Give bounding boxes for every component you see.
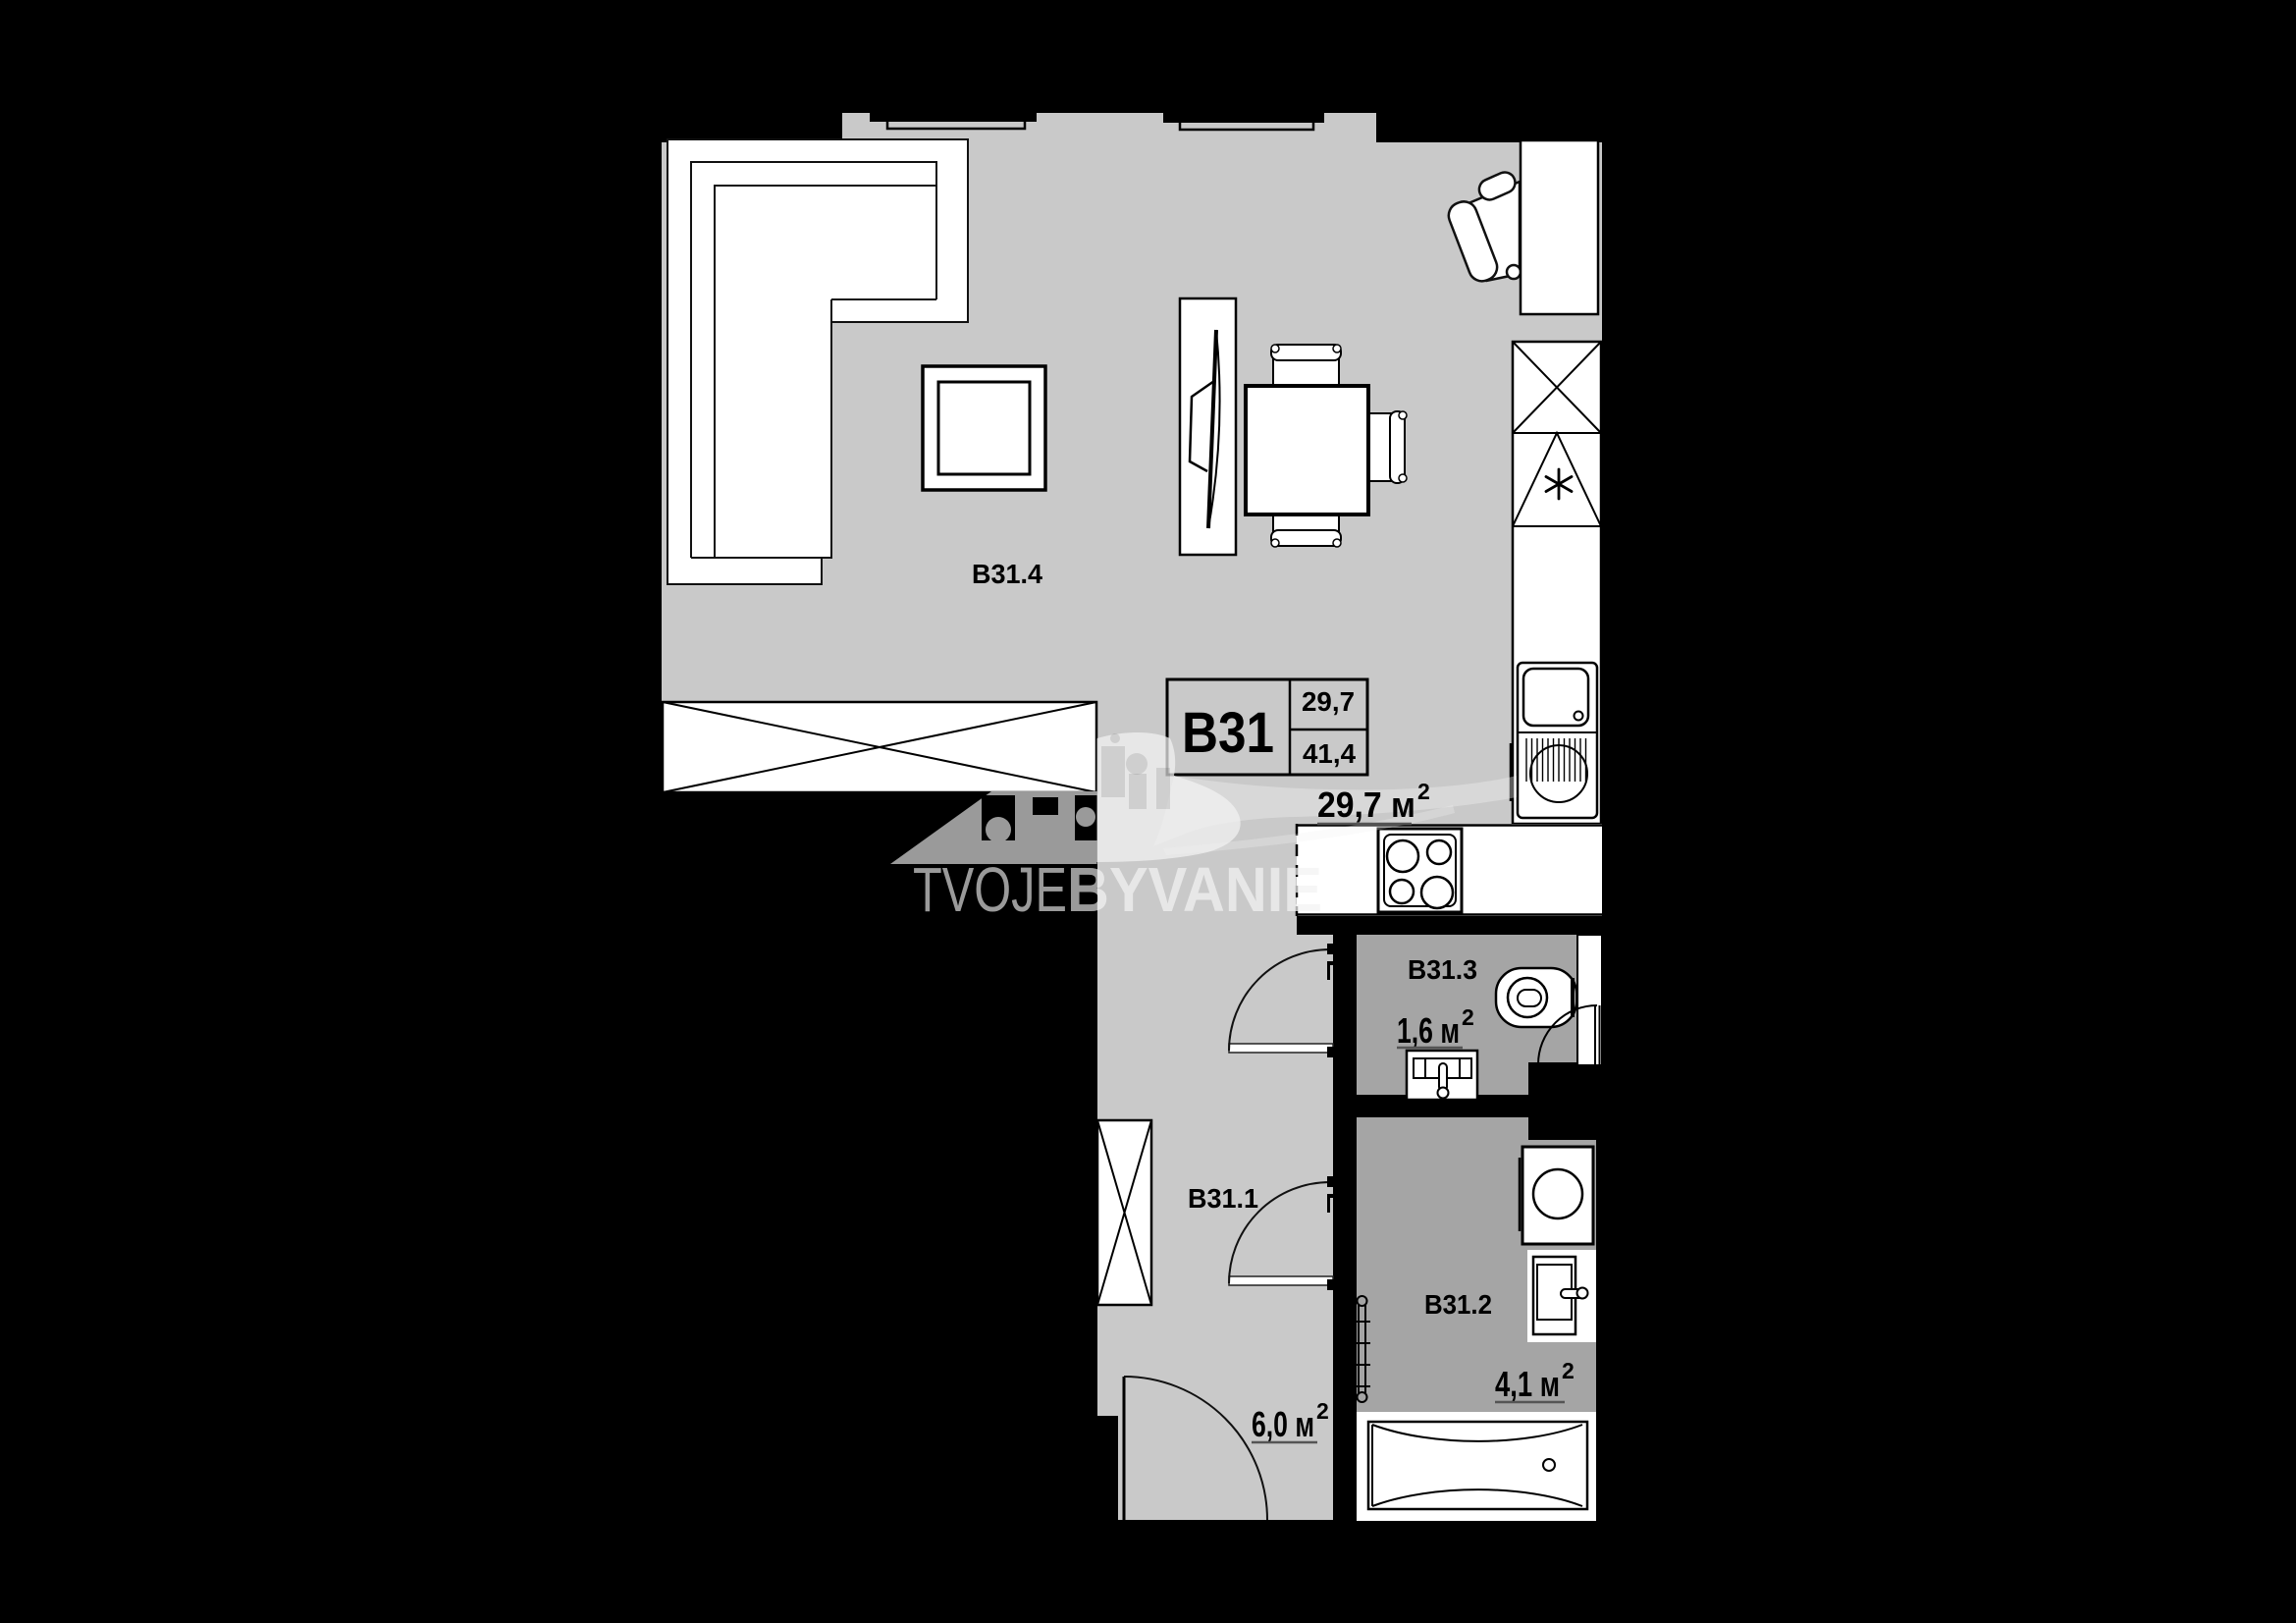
svg-text:2: 2: [1316, 1398, 1329, 1424]
svg-text:B31: B31: [1182, 701, 1274, 765]
svg-text:2: 2: [1462, 1004, 1474, 1030]
svg-text:29,7: 29,7: [1302, 686, 1355, 717]
svg-text:1,6 м: 1,6 м: [1397, 1010, 1460, 1051]
svg-text:B31.3: B31.3: [1408, 954, 1477, 985]
svg-text:41,4: 41,4: [1303, 738, 1356, 769]
svg-text:B31.1: B31.1: [1188, 1183, 1258, 1214]
svg-text:4,1 м: 4,1 м: [1495, 1364, 1560, 1404]
svg-text:6,0 м: 6,0 м: [1252, 1404, 1314, 1444]
svg-text:29,7 м: 29,7 м: [1317, 784, 1415, 825]
svg-text:B31.2: B31.2: [1424, 1289, 1492, 1320]
svg-text:2: 2: [1417, 779, 1430, 804]
svg-text:TVOJE: TVOJE: [913, 854, 1067, 925]
svg-text:B31.4: B31.4: [972, 559, 1042, 589]
svg-text:BYVANIE: BYVANIE: [1067, 854, 1322, 925]
svg-text:2: 2: [1562, 1358, 1575, 1383]
